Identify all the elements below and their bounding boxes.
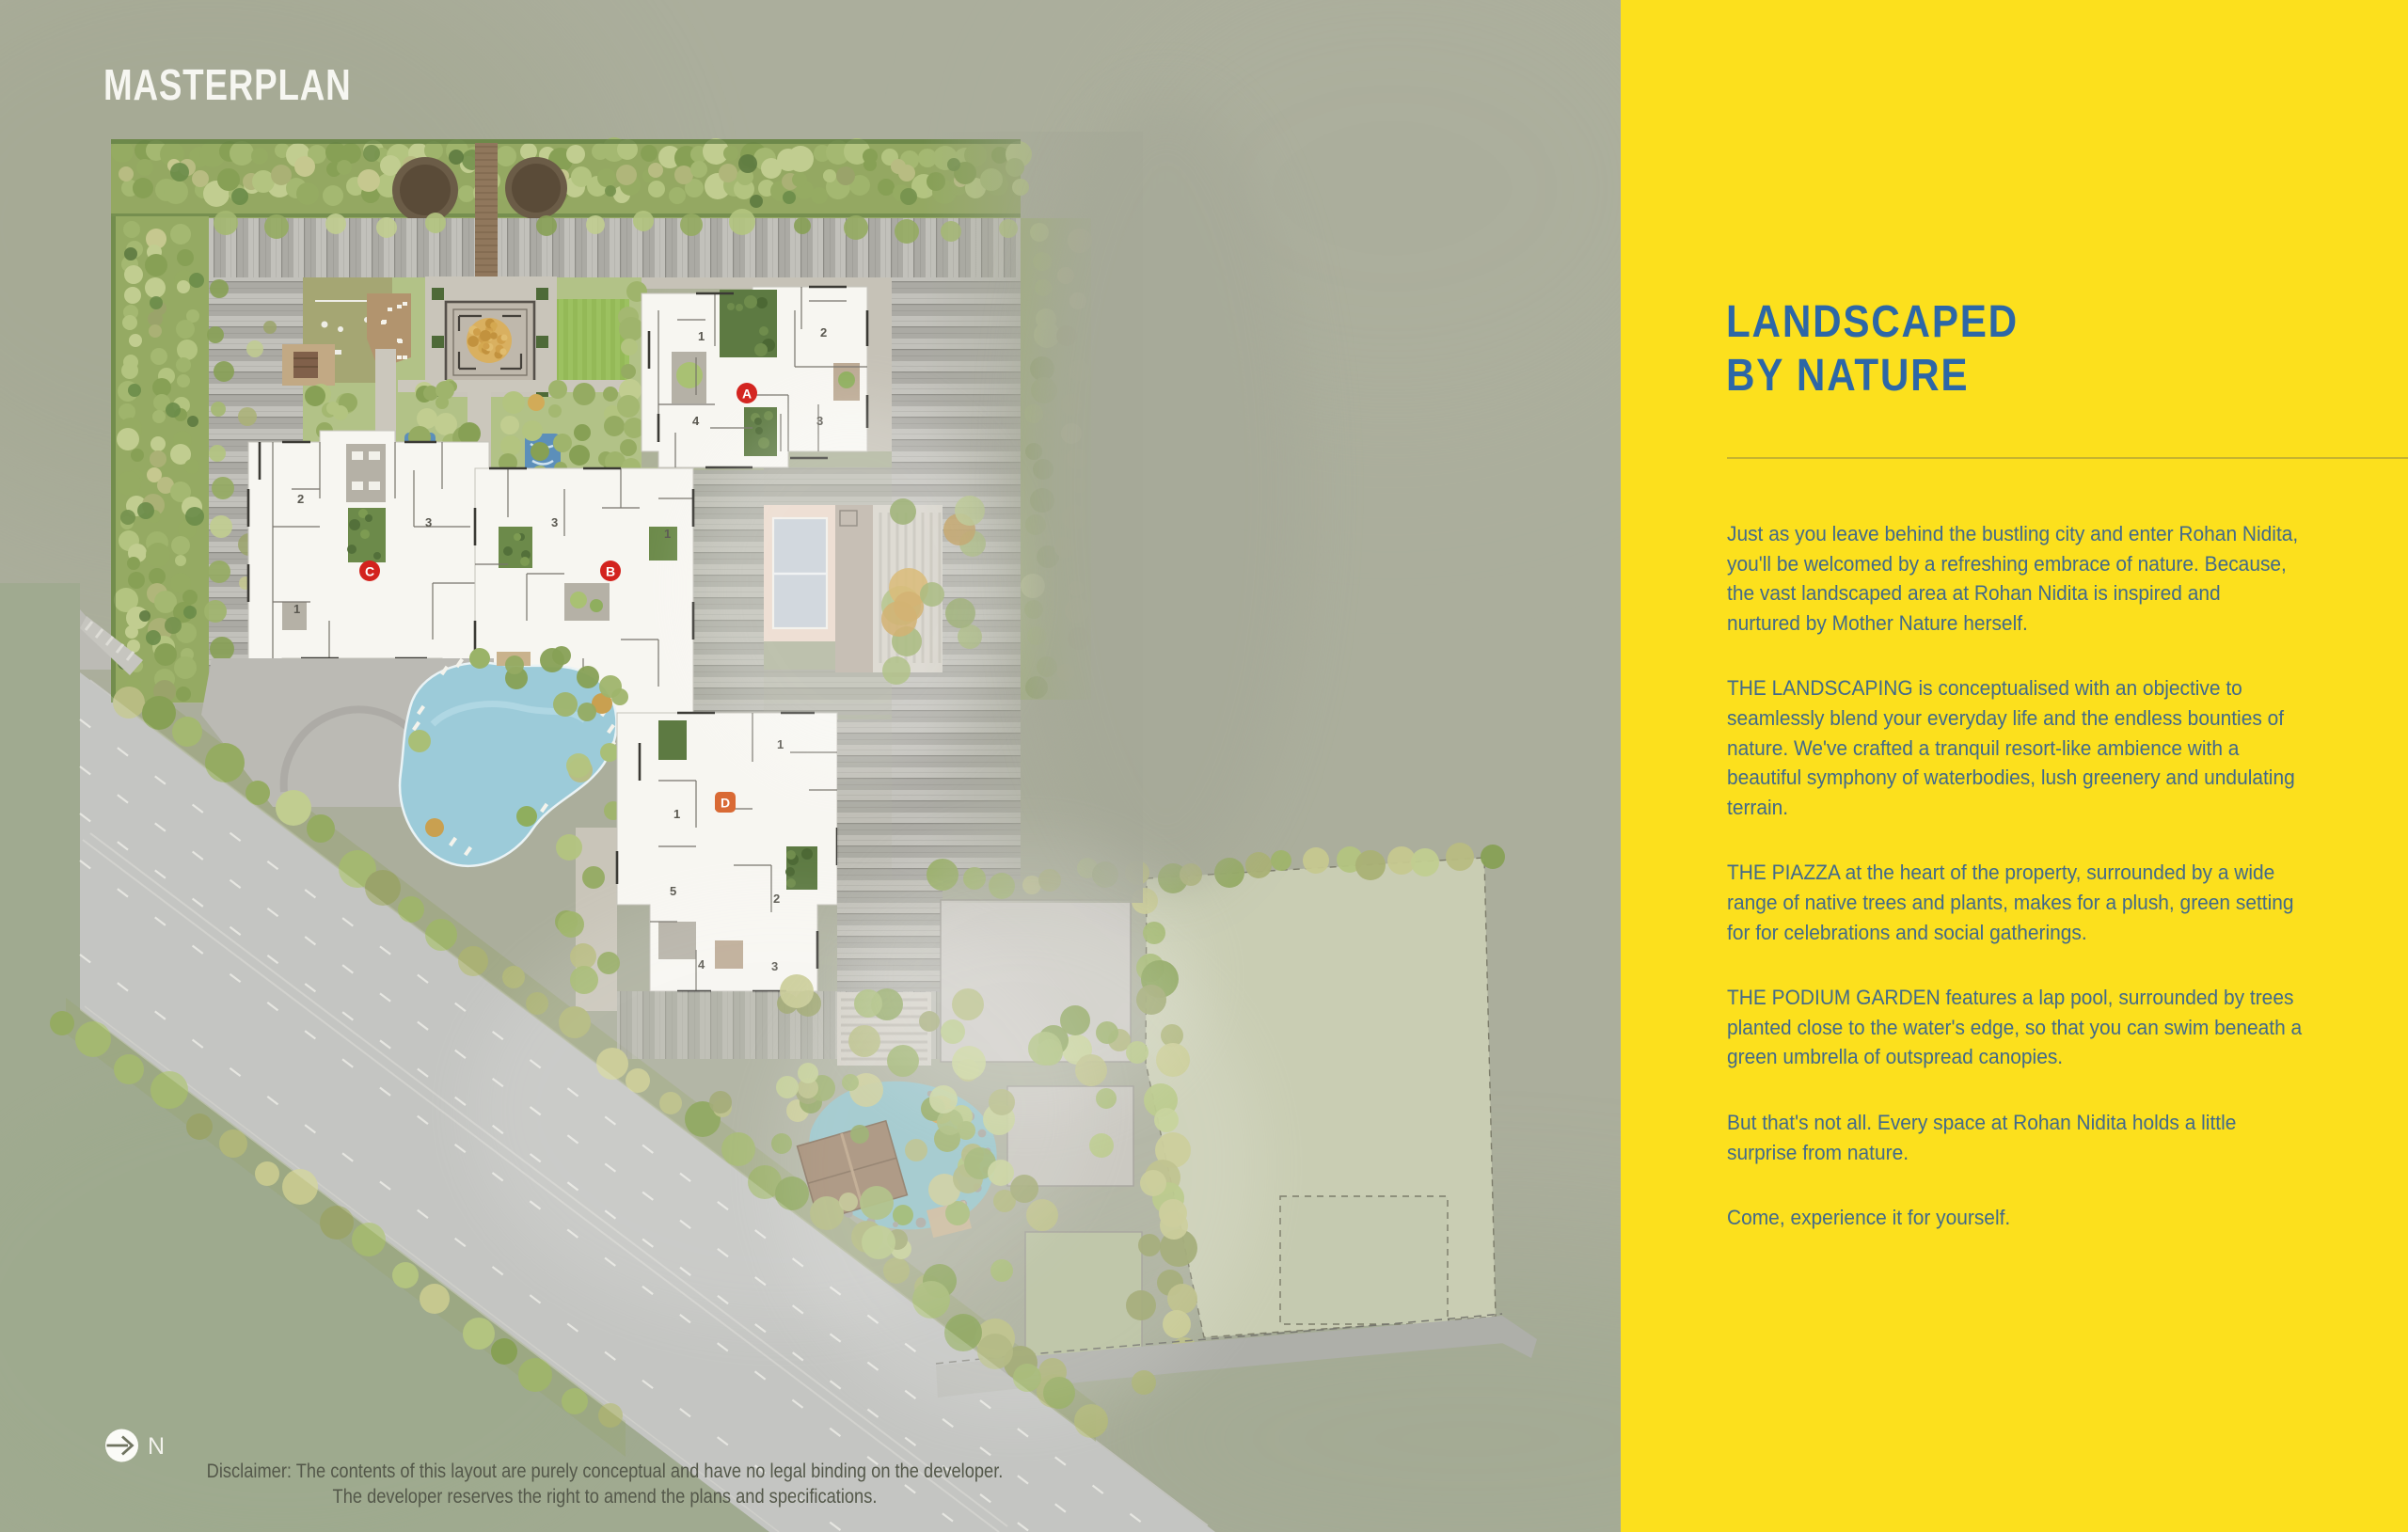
svg-text:1: 1 [293,602,300,616]
svg-text:2: 2 [820,325,827,340]
svg-text:4: 4 [692,414,700,428]
svg-text:1: 1 [664,527,671,541]
svg-text:C: C [365,564,374,579]
svg-text:D: D [721,796,730,811]
svg-text:3: 3 [551,515,558,529]
svg-text:B: B [606,564,615,579]
svg-text:3: 3 [425,515,432,529]
svg-text:N: N [148,1433,165,1460]
svg-text:1: 1 [673,807,680,821]
svg-text:2: 2 [297,492,304,506]
svg-text:A: A [742,387,752,402]
svg-text:1: 1 [698,329,705,343]
svg-text:5: 5 [670,884,676,898]
